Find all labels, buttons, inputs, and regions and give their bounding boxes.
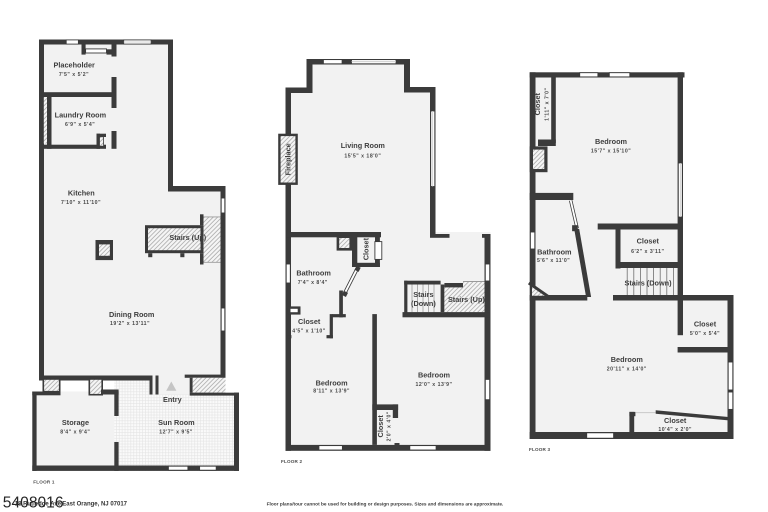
- svg-text:East Orange, NJ 07017: East Orange, NJ 07017: [62, 501, 127, 507]
- svg-text:Bedroom: Bedroom: [595, 137, 628, 146]
- svg-text:19'2" x 13'11": 19'2" x 13'11": [110, 321, 150, 327]
- svg-text:15'5" x 18'0": 15'5" x 18'0": [344, 154, 381, 160]
- svg-text:Fireplace: Fireplace: [284, 143, 293, 175]
- svg-text:7'10" x 11'10": 7'10" x 11'10": [61, 200, 101, 206]
- svg-text:Dining Room: Dining Room: [109, 310, 155, 319]
- svg-text:Floor plans/tour cannot be use: Floor plans/tour cannot be used for buil…: [267, 502, 504, 508]
- svg-text:Placeholder: Placeholder: [54, 61, 96, 70]
- svg-text:Storage: Storage: [62, 418, 89, 427]
- svg-text:Kitchen: Kitchen: [68, 188, 95, 197]
- svg-text:2'0" x 4'0": 2'0" x 4'0": [387, 411, 393, 441]
- svg-text:5'6" x 11'0": 5'6" x 11'0": [537, 258, 570, 264]
- svg-text:10'4" x 2'0": 10'4" x 2'0": [658, 427, 692, 433]
- svg-text:1'11" x 7'0": 1'11" x 7'0": [544, 88, 550, 121]
- svg-text:FLOOR 2: FLOOR 2: [281, 459, 303, 464]
- svg-text:Stairs (Up): Stairs (Up): [448, 295, 485, 304]
- svg-text:20'11" x 14'0": 20'11" x 14'0": [607, 366, 647, 372]
- svg-text:Bedroom: Bedroom: [418, 371, 451, 380]
- svg-text:(Down): (Down): [411, 299, 436, 308]
- svg-text:Bedroom: Bedroom: [316, 378, 349, 387]
- svg-text:8'4" x 9'4": 8'4" x 9'4": [60, 430, 90, 436]
- svg-text:Closet: Closet: [694, 319, 717, 328]
- svg-text:Stairs: Stairs: [413, 290, 433, 299]
- svg-text:Bathroom: Bathroom: [296, 269, 331, 278]
- svg-text:15'7" x 15'10": 15'7" x 15'10": [591, 149, 631, 155]
- svg-text:5'0" x 5'4": 5'0" x 5'4": [690, 331, 720, 337]
- svg-text:Laundry Room: Laundry Room: [55, 111, 107, 120]
- svg-text:6'2" x 3'11": 6'2" x 3'11": [631, 249, 664, 255]
- svg-text:7'4" x 8'4": 7'4" x 8'4": [298, 280, 328, 286]
- svg-text:Sun Room: Sun Room: [158, 418, 195, 427]
- svg-text:12'7" x 9'5": 12'7" x 9'5": [159, 430, 193, 436]
- svg-text:Stairs (Down): Stairs (Down): [624, 279, 672, 288]
- svg-text:Bedroom: Bedroom: [611, 355, 644, 364]
- svg-text:Living Room: Living Room: [341, 141, 386, 150]
- svg-text:Closet: Closet: [637, 237, 660, 246]
- svg-text:4'5" x 1'10": 4'5" x 1'10": [292, 328, 326, 334]
- svg-text:Closet: Closet: [664, 416, 687, 425]
- svg-text:5408016: 5408016: [3, 494, 64, 511]
- svg-text:FLOOR 1: FLOOR 1: [33, 480, 55, 485]
- svg-text:7'5" x 5'2": 7'5" x 5'2": [59, 72, 89, 78]
- svg-text:6'9" x 5'4": 6'9" x 5'4": [65, 122, 95, 128]
- svg-text:Closet: Closet: [533, 92, 542, 115]
- svg-text:Closet: Closet: [376, 415, 385, 438]
- svg-text:Entry: Entry: [163, 395, 183, 404]
- svg-text:8'11" x 13'9": 8'11" x 13'9": [313, 389, 350, 395]
- svg-text:FLOOR 3: FLOOR 3: [529, 447, 551, 452]
- svg-text:Closet: Closet: [298, 317, 321, 326]
- svg-text:Closet: Closet: [361, 237, 370, 260]
- svg-text:Bathroom: Bathroom: [537, 248, 572, 257]
- svg-text:Stairs (Up): Stairs (Up): [169, 233, 206, 242]
- svg-text:12'0" x 13'9": 12'0" x 13'9": [416, 382, 453, 388]
